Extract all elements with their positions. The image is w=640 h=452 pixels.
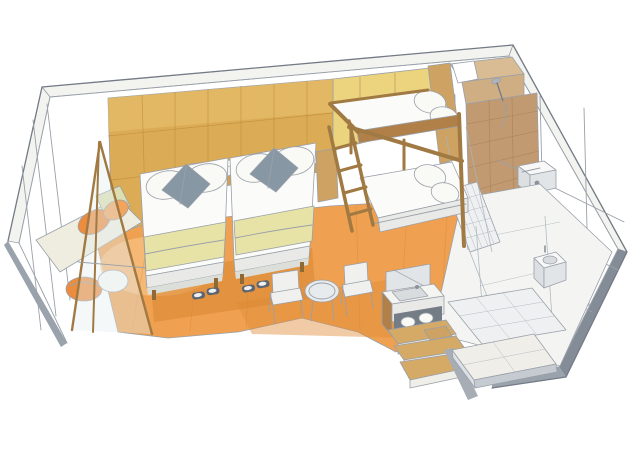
twin-bed-right <box>230 143 316 284</box>
wall-west-band <box>8 87 50 243</box>
bed-leg <box>300 262 304 272</box>
rolled-towel <box>419 313 433 323</box>
hotel-room-illustration <box>0 0 640 452</box>
twin-bed-left <box>140 158 229 300</box>
bed-leg <box>214 278 218 288</box>
bed-leg <box>152 290 156 300</box>
bed-leg <box>240 274 244 284</box>
faucet <box>415 285 419 289</box>
shower-doorway <box>452 61 478 83</box>
window-mullions <box>22 104 70 330</box>
sketch-canvas <box>0 0 640 452</box>
